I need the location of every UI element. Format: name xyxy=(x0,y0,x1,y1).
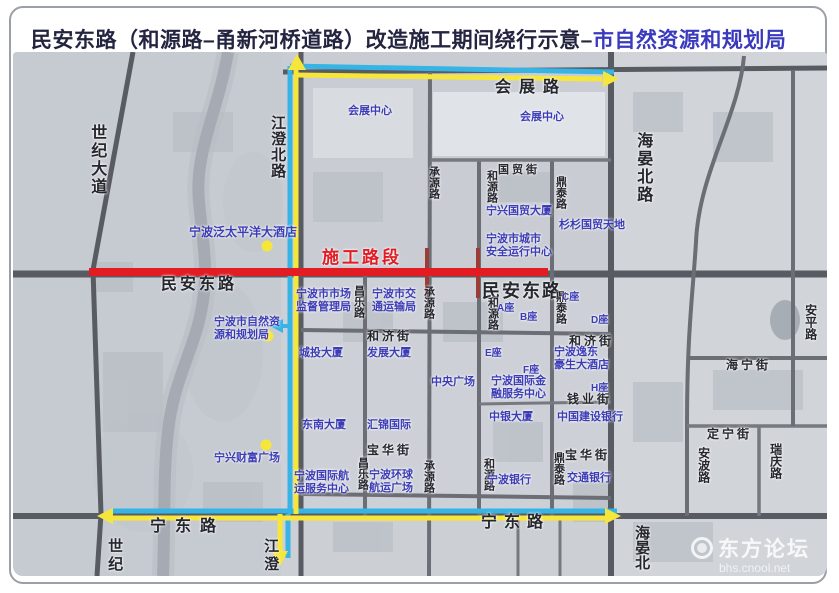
place-label: 东南大厦 xyxy=(302,419,346,432)
watermark-site-name: 东方论坛 xyxy=(718,533,810,563)
road-label: 承源路 xyxy=(422,460,435,493)
road-label: 宝华街 xyxy=(367,444,412,458)
stadium-field xyxy=(770,300,800,340)
road-label: 国贸街 xyxy=(498,164,540,177)
road-label: 瑞庆路 xyxy=(768,443,782,479)
place-label: 宁波国际金 融服务中心 xyxy=(491,375,546,400)
place-label: 宁波市市场 监督管理局 xyxy=(296,288,351,313)
place-label: A座 xyxy=(497,303,514,314)
watermark-site-url: bhs.cnool.net xyxy=(719,561,810,575)
road-label: 鼎泰路 xyxy=(552,452,565,485)
place-label: 宁兴财富广场 xyxy=(214,452,280,465)
place-label: 城投大厦 xyxy=(299,347,343,360)
road-label: 承源路 xyxy=(427,166,440,199)
screenshot-root: { "title": { "part1": "民安东路（和源路–甬新河桥道路）改… xyxy=(0,0,839,593)
road-label: 鼎泰路 xyxy=(554,176,567,209)
road-label: 世纪 xyxy=(106,538,123,574)
place-label: E座 xyxy=(485,348,502,359)
map-graphics xyxy=(13,52,827,576)
page-title: 民安东路（和源路–甬新河桥道路）改造施工期间绕行示意–市自然资源和规划局 xyxy=(31,24,831,54)
landmark-dot xyxy=(261,440,272,451)
place-label: 宁兴国贸大厦 xyxy=(486,205,552,218)
road-label: 海宁街 xyxy=(726,359,771,373)
road-label: 和源路 xyxy=(485,170,498,203)
place-label: 宁波环球 航运广场 xyxy=(369,469,413,494)
title-main: 民安东路（和源路–甬新河桥道路）改造施工期间绕行示意– xyxy=(31,29,593,52)
place-label: 交通银行 xyxy=(567,472,611,485)
landmark-dot xyxy=(262,241,273,252)
forum-logo-icon xyxy=(691,537,713,559)
place-label: 宁波市交 通运输局 xyxy=(372,288,416,313)
place-label: 发展大厦 xyxy=(367,347,411,360)
road-label: 世纪大道 xyxy=(87,124,105,196)
place-label: 会展中心 xyxy=(520,111,564,124)
title-org: 市自然资源和规划局 xyxy=(593,29,787,52)
road-label: 安波路 xyxy=(696,447,710,483)
road-label: 海晏北路 xyxy=(633,132,651,204)
road-label: 定宁街 xyxy=(707,428,752,442)
place-label: H座 xyxy=(591,383,608,394)
place-label: 杉杉国贸天地 xyxy=(559,219,625,232)
place-label: 中银大厦 xyxy=(489,411,533,424)
road-label: 宝华街 xyxy=(565,449,610,463)
place-label: 汇锦国际 xyxy=(367,419,411,432)
road-label: 宁东路 xyxy=(150,518,225,536)
road-label: 昌乐路 xyxy=(356,457,369,490)
place-label: 宁波逸东 豪生大酒店 xyxy=(554,346,609,371)
road-label: 江澄北路 xyxy=(269,115,286,179)
place-label: 宁波国际航 运服务中心 xyxy=(294,470,349,495)
road-label: 宁东路 xyxy=(481,514,550,532)
place-label: 会展中心 xyxy=(348,105,392,118)
place-label: 宁波市城市 安全运行中心 xyxy=(486,233,552,258)
place-label: B座 xyxy=(520,312,537,323)
road-label: 江澄 xyxy=(262,538,279,574)
road-label: 承源路 xyxy=(422,286,435,319)
road-label: 钱业街 xyxy=(567,393,612,407)
road-label: 安平路 xyxy=(803,304,817,340)
detour-map: 施工路段世纪大道江澄北路会展路海晏北路民安东路民安东路宁东路宁东路国贸街承源路和… xyxy=(13,52,827,576)
place-label: 宁波泛太平洋大酒店 xyxy=(189,226,297,240)
place-label: 宁波市自然资 源和规划局 xyxy=(214,316,280,341)
road-label: 海晏北 xyxy=(633,525,650,570)
road-chengyuanlu xyxy=(429,72,430,576)
road-label: 民安东路 xyxy=(161,276,237,294)
watermark: 东方论坛 bhs.cnool.net xyxy=(691,533,810,575)
place-label: 中国建设银行 xyxy=(557,411,623,424)
place-label: D座 xyxy=(591,315,608,326)
road-label: 会展路 xyxy=(495,79,567,97)
place-label: 宁波银行 xyxy=(487,474,531,487)
construction-label: 施工路段 xyxy=(322,248,402,267)
road-label: 和济街 xyxy=(367,330,412,344)
road-label: 昌乐路 xyxy=(352,285,365,318)
place-label: C座 xyxy=(562,292,579,303)
place-label: 中央广场 xyxy=(431,376,475,389)
